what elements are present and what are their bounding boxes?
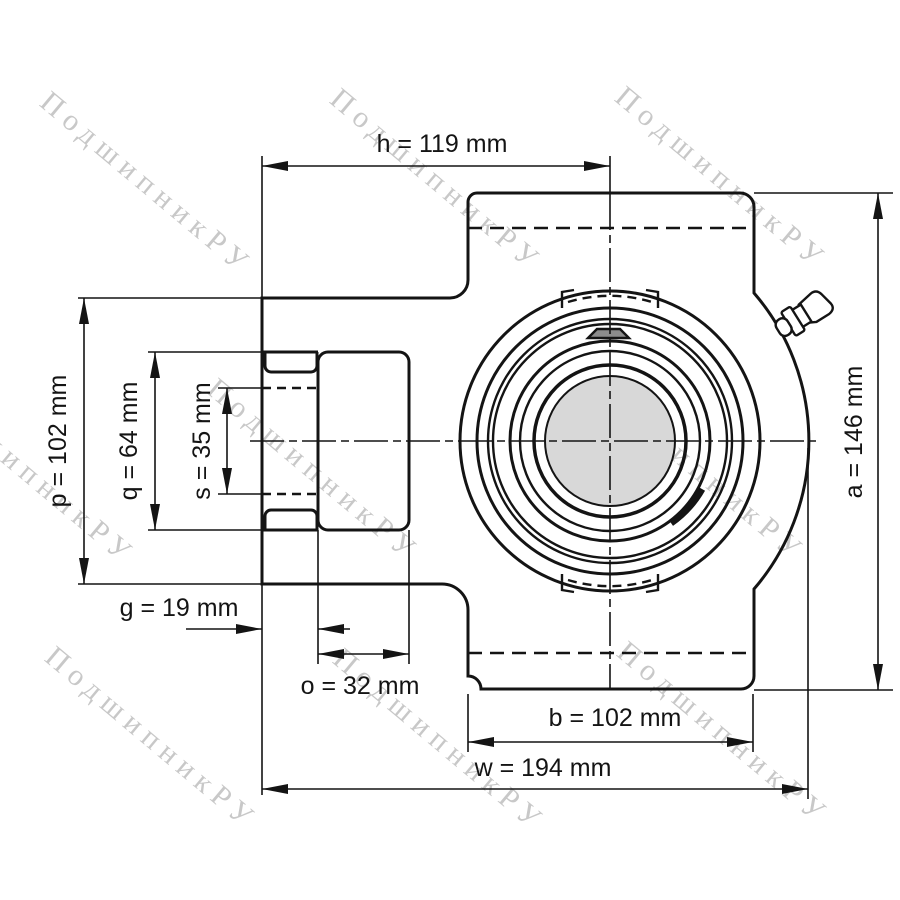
grease-fitting-icon [771, 287, 836, 342]
dimension-a: a = 146 mm [840, 193, 883, 690]
drawing-canvas: ПодшипникРУ ПодшипникРУ ПодшипникРУ Подш… [0, 0, 900, 900]
top-slot [588, 329, 629, 338]
dimension-h-label: h = 119 mm [377, 130, 508, 158]
dimension-o-label: o = 32 mm [301, 672, 420, 700]
dimension-h: h = 119 mm [262, 130, 610, 171]
upper-groove [265, 352, 317, 372]
dimension-w: w = 194 mm [262, 754, 808, 794]
dimension-b-label: b = 102 mm [549, 704, 682, 732]
dimension-a-label: a = 146 mm [840, 366, 868, 499]
dimension-s-label: s = 35 mm [188, 382, 216, 499]
dimension-g-label: g = 19 mm [120, 594, 239, 622]
dimension-q: q = 64 mm [115, 352, 160, 530]
dimension-g: g = 19 mm [120, 594, 350, 634]
bearing-drawing: h = 119 mm p = 102 mm q = 64 mm s = 35 m… [0, 0, 900, 900]
dimension-w-label: w = 194 mm [474, 754, 612, 782]
lower-groove [265, 510, 317, 530]
dimension-s: s = 35 mm [188, 382, 232, 499]
dimension-p: p = 102 mm [44, 298, 89, 584]
dimension-b: b = 102 mm [468, 704, 753, 747]
dimension-p-label: p = 102 mm [44, 375, 72, 508]
dimension-q-label: q = 64 mm [115, 382, 143, 501]
